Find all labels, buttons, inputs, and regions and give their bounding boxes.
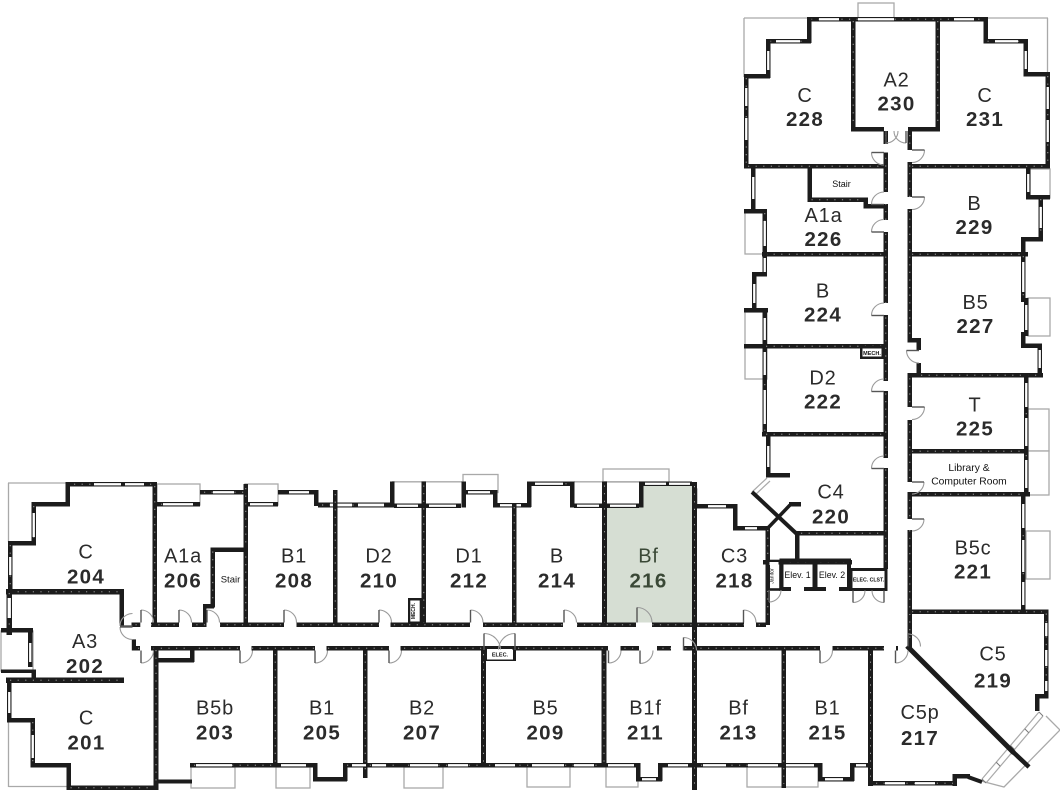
svg-text:C: C — [79, 708, 94, 730]
svg-text:C: C — [977, 85, 992, 107]
svg-text:230: 230 — [877, 93, 915, 116]
svg-text:204: 204 — [67, 566, 105, 589]
svg-text:C4: C4 — [817, 482, 844, 504]
svg-text:225: 225 — [956, 418, 994, 441]
svg-text:B1: B1 — [281, 546, 307, 568]
svg-text:T: T — [968, 395, 981, 417]
svg-text:Bf: Bf — [728, 698, 749, 720]
svg-text:B5b: B5b — [196, 698, 234, 720]
svg-text:A1a: A1a — [805, 205, 843, 227]
svg-text:203: 203 — [196, 722, 234, 745]
svg-text:C5p: C5p — [900, 702, 939, 724]
svg-text:226: 226 — [804, 228, 842, 251]
svg-text:B1: B1 — [814, 698, 840, 720]
svg-text:213: 213 — [719, 722, 757, 745]
svg-text:207: 207 — [403, 722, 441, 745]
svg-text:B1: B1 — [309, 698, 335, 720]
svg-text:218: 218 — [715, 570, 753, 593]
svg-text:215: 215 — [808, 722, 846, 745]
svg-text:221: 221 — [954, 561, 992, 584]
svg-text:228: 228 — [786, 108, 824, 131]
svg-text:MECH.: MECH. — [411, 602, 417, 619]
svg-text:212: 212 — [450, 570, 488, 593]
svg-text:201: 201 — [67, 732, 105, 755]
svg-text:217: 217 — [901, 727, 939, 750]
svg-text:B5: B5 — [962, 292, 988, 314]
svg-text:205: 205 — [303, 722, 341, 745]
svg-text:Stair: Stair — [832, 179, 851, 189]
svg-text:Stair: Stair — [221, 575, 241, 586]
svg-text:Janitor: Janitor — [770, 568, 776, 584]
svg-text:A1a: A1a — [164, 546, 202, 568]
svg-text:219: 219 — [974, 670, 1012, 693]
svg-text:A3: A3 — [72, 631, 98, 653]
svg-text:210: 210 — [360, 570, 398, 593]
svg-text:D1: D1 — [455, 546, 482, 568]
svg-text:B5c: B5c — [955, 538, 992, 560]
svg-text:231: 231 — [966, 108, 1004, 131]
svg-text:222: 222 — [804, 391, 842, 414]
svg-text:227: 227 — [956, 315, 994, 338]
svg-text:208: 208 — [275, 570, 313, 593]
svg-text:Computer Room: Computer Room — [931, 477, 1007, 488]
svg-text:206: 206 — [164, 570, 202, 593]
svg-text:Elev. 1: Elev. 1 — [784, 570, 810, 580]
svg-text:Elev. 2: Elev. 2 — [819, 570, 845, 580]
svg-text:ELEC. CLST.: ELEC. CLST. — [853, 578, 885, 584]
svg-text:ELEC.: ELEC. — [492, 653, 509, 659]
svg-text:220: 220 — [812, 506, 850, 529]
svg-text:B: B — [550, 546, 564, 568]
svg-text:B2: B2 — [409, 698, 435, 720]
svg-text:MECH.: MECH. — [863, 351, 881, 357]
svg-text:C3: C3 — [721, 546, 748, 568]
svg-text:214: 214 — [538, 570, 576, 593]
svg-text:Library &: Library & — [948, 463, 989, 474]
svg-text:B5: B5 — [532, 698, 558, 720]
svg-text:211: 211 — [627, 722, 664, 745]
svg-text:202: 202 — [66, 655, 104, 678]
svg-text:C: C — [78, 542, 93, 564]
svg-text:209: 209 — [526, 722, 564, 745]
svg-text:229: 229 — [955, 216, 993, 239]
svg-text:C: C — [797, 85, 812, 107]
svg-text:B: B — [967, 193, 981, 215]
svg-text:224: 224 — [804, 304, 842, 327]
svg-text:D2: D2 — [809, 368, 836, 390]
svg-text:B: B — [816, 281, 830, 303]
svg-text:B1f: B1f — [629, 698, 661, 720]
svg-text:D2: D2 — [365, 546, 392, 568]
svg-text:216: 216 — [629, 570, 667, 593]
svg-text:C5: C5 — [979, 644, 1006, 666]
svg-text:Bf: Bf — [638, 546, 659, 568]
svg-text:A2: A2 — [883, 70, 909, 92]
